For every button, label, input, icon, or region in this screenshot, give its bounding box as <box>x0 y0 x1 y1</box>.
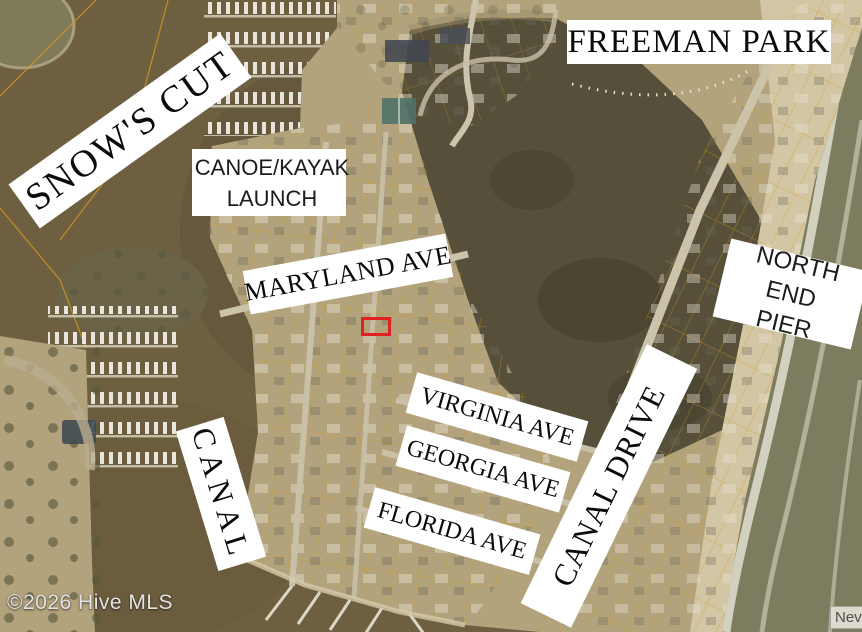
label-canoe-kayak-line1: CANOE/KAYAK <box>195 152 349 183</box>
label-canoe-kayak-line2: LAUNCH <box>227 183 317 214</box>
label-freeman-park: FREEMAN PARK <box>567 20 831 64</box>
subject-property-outline <box>361 317 391 336</box>
aerial-map-image: SNOW'S CUT FREEMAN PARK CANOE/KAYAK LAUN… <box>0 0 862 632</box>
label-canoe-kayak-launch: CANOE/KAYAK LAUNCH <box>192 149 346 216</box>
condo-roof <box>385 40 429 62</box>
corner-watermark-partial: Nev <box>830 606 862 629</box>
mls-copyright-watermark: ©2026 Hive MLS <box>7 591 173 615</box>
